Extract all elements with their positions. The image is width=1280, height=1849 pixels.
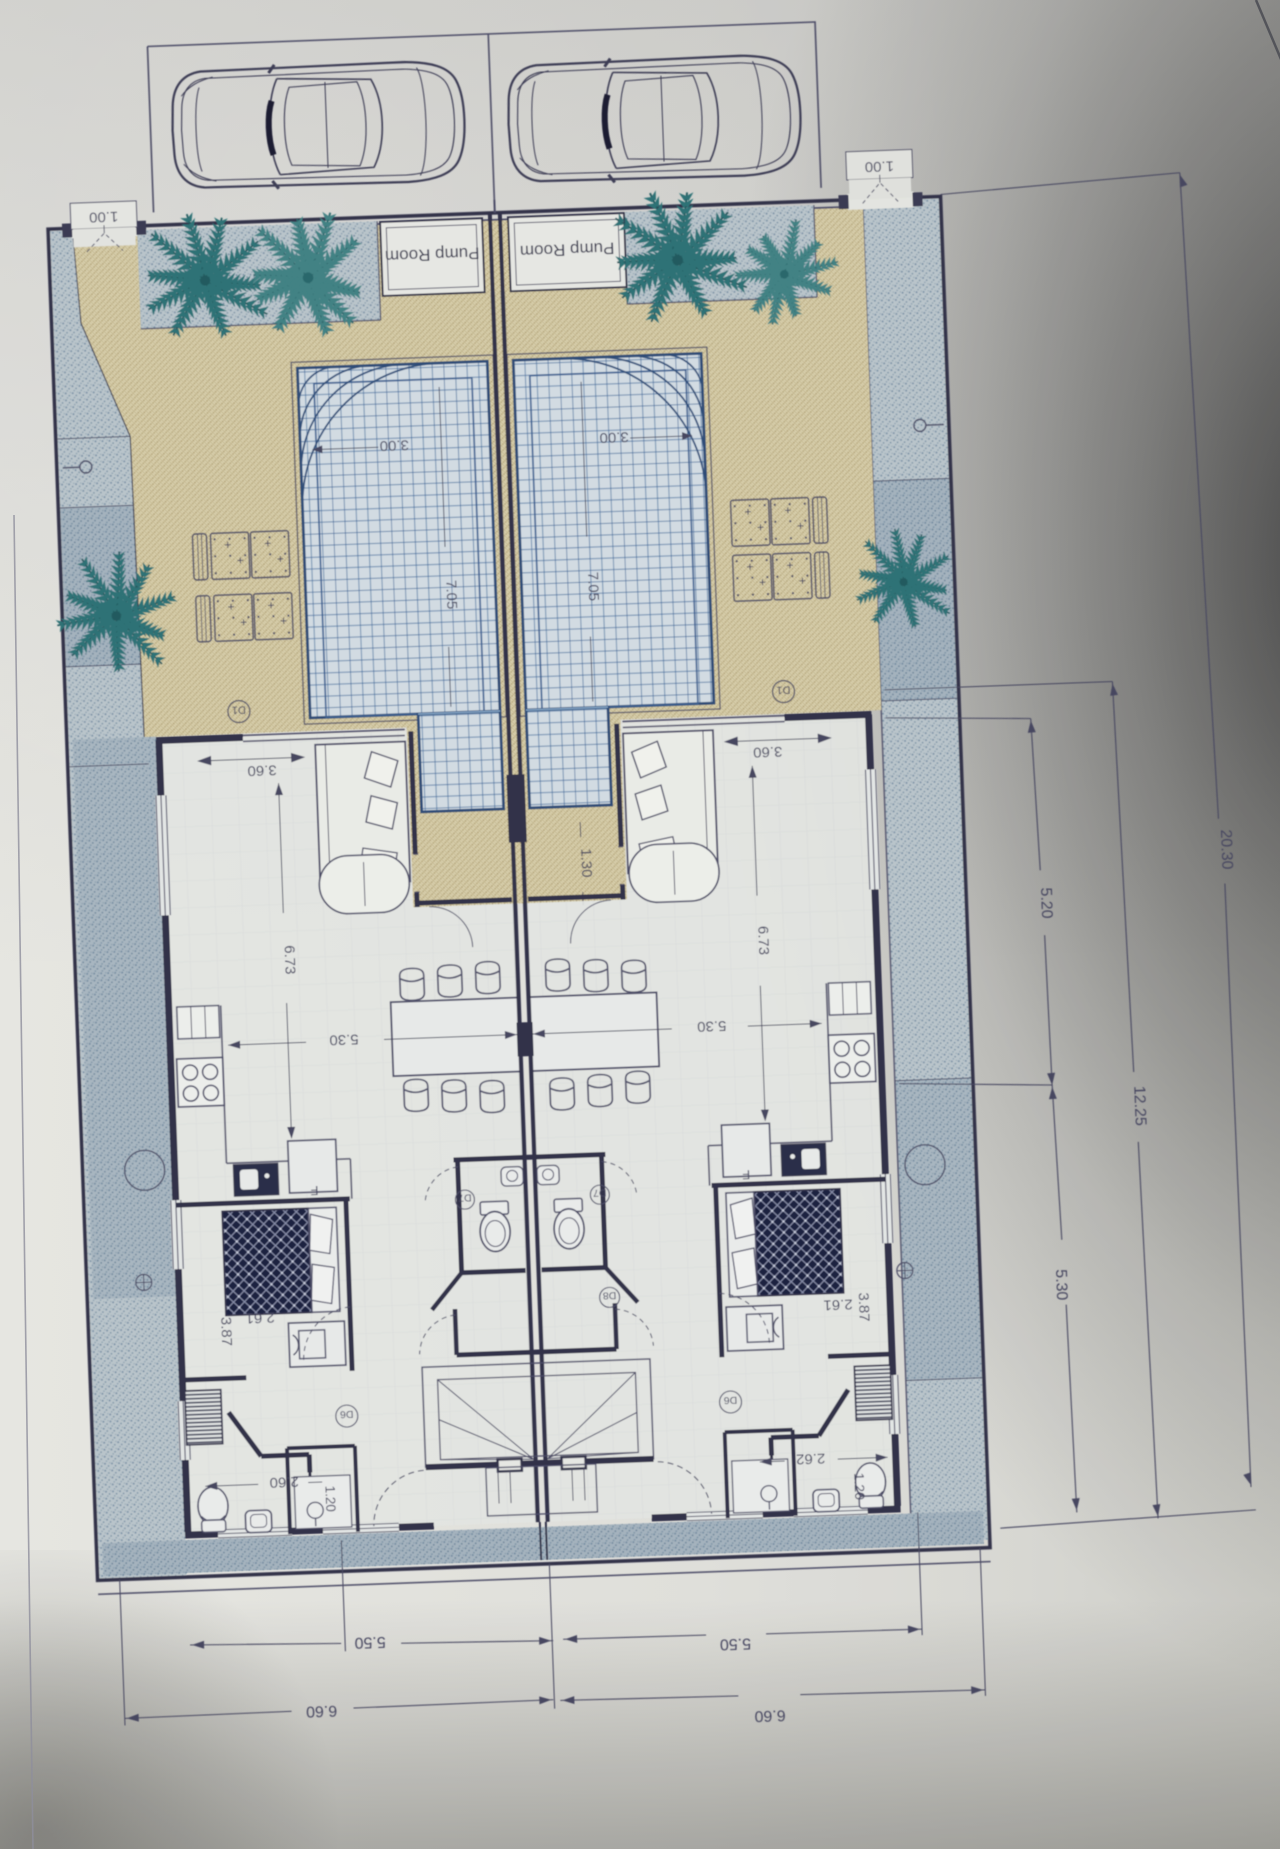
svg-text:2.62: 2.62 xyxy=(796,1450,826,1468)
svg-text:2.61: 2.61 xyxy=(245,1309,275,1327)
svg-text:Pump Room: Pump Room xyxy=(520,238,615,260)
svg-text:5.50: 5.50 xyxy=(354,1633,386,1651)
svg-text:3.87: 3.87 xyxy=(855,1292,873,1322)
svg-text:D7: D7 xyxy=(458,1191,472,1203)
svg-text:D6: D6 xyxy=(723,1394,737,1406)
svg-text:D8: D8 xyxy=(602,1289,616,1301)
svg-text:3.00: 3.00 xyxy=(599,428,629,446)
svg-text:5.20: 5.20 xyxy=(1037,887,1055,919)
svg-text:7.05: 7.05 xyxy=(584,572,602,602)
svg-text:1.00: 1.00 xyxy=(864,157,894,175)
svg-text:F: F xyxy=(742,1167,751,1182)
svg-text:D1: D1 xyxy=(776,683,790,696)
svg-text:3.00: 3.00 xyxy=(379,436,409,454)
svg-text:D6: D6 xyxy=(340,1408,354,1420)
svg-text:3.87: 3.87 xyxy=(217,1317,235,1347)
svg-text:1.20: 1.20 xyxy=(322,1485,338,1512)
svg-text:12.25: 12.25 xyxy=(1130,1085,1148,1126)
svg-text:2.60: 2.60 xyxy=(269,1473,299,1491)
svg-text:20.30: 20.30 xyxy=(1217,829,1235,870)
svg-text:2.61: 2.61 xyxy=(823,1295,853,1313)
svg-text:3.60: 3.60 xyxy=(753,743,783,761)
svg-text:D7: D7 xyxy=(593,1186,607,1198)
svg-text:1.20: 1.20 xyxy=(851,1472,868,1500)
svg-text:6.73: 6.73 xyxy=(754,926,772,956)
svg-text:Pump Room: Pump Room xyxy=(385,243,480,265)
svg-text:5.30: 5.30 xyxy=(329,1030,359,1048)
svg-text:7.05: 7.05 xyxy=(442,580,460,610)
svg-text:D1: D1 xyxy=(232,703,246,716)
svg-text:5.30: 5.30 xyxy=(697,1017,727,1035)
svg-text:3.60: 3.60 xyxy=(247,761,277,779)
svg-text:5.50: 5.50 xyxy=(719,1634,751,1652)
svg-text:6.73: 6.73 xyxy=(281,945,299,975)
svg-text:6.60: 6.60 xyxy=(754,1706,786,1724)
svg-text:F: F xyxy=(310,1183,319,1198)
svg-text:1.00: 1.00 xyxy=(89,208,119,226)
svg-text:5.30: 5.30 xyxy=(1052,1269,1070,1301)
svg-text:6.60: 6.60 xyxy=(306,1702,338,1720)
svg-text:1.30: 1.30 xyxy=(577,848,595,878)
